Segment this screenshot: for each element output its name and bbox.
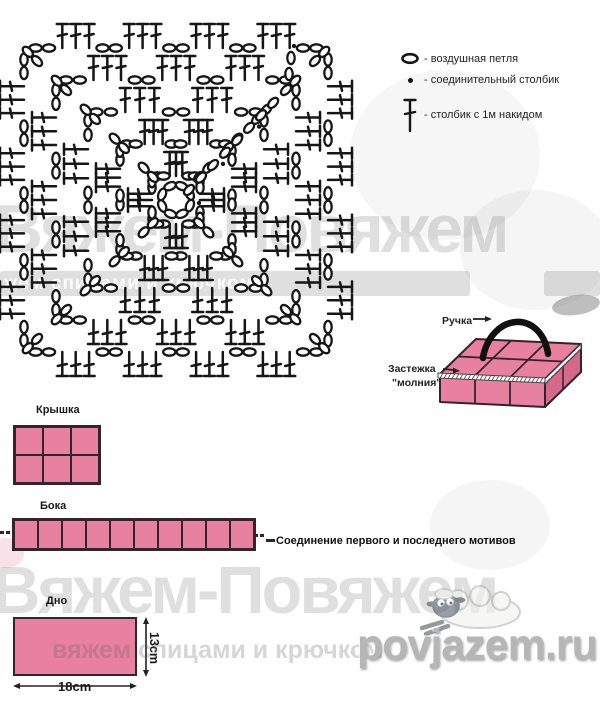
motif-cell <box>43 427 71 455</box>
site-watermark: povjazem.ru <box>357 621 597 670</box>
legend-item-dc: - столбик с 1м накидом <box>396 96 542 134</box>
symbol-legend: - воздушная петля - соединительный столб… <box>396 50 600 145</box>
watermark-tagline-bottom: вяжем спицами и крючком <box>52 636 383 665</box>
motif-cell <box>15 427 43 455</box>
handle-label: Ручка <box>442 315 472 327</box>
join-tick-right-2 <box>260 534 264 537</box>
zipper-label-line1: Застежка <box>388 363 436 375</box>
chain-stitch-icon <box>396 52 424 65</box>
legend-label-slip: - соединительный столбик <box>424 74 559 86</box>
sides-strip <box>12 518 256 551</box>
motif-cell <box>110 520 134 549</box>
double-crochet-icon <box>396 97 424 133</box>
motif-cell <box>43 455 71 483</box>
motif-cell <box>38 520 62 549</box>
granny-square-crochet-chart <box>0 4 356 386</box>
motif-cell <box>206 520 230 549</box>
slip-stitch-icon <box>396 78 424 83</box>
lid-label: Крышка <box>36 404 80 416</box>
motif-cell <box>14 520 38 549</box>
motif-cell <box>86 520 110 549</box>
join-tick-left-2 <box>6 531 10 534</box>
width-dimension-label: 18cm <box>58 679 91 694</box>
legend-label-dc: - столбик с 1м накидом <box>424 109 542 121</box>
motif-cell <box>134 520 158 549</box>
join-note-dash <box>266 539 275 542</box>
legend-item-chain: - воздушная петля <box>396 52 518 65</box>
join-note: Соединение первого и последнего мотивов <box>276 535 516 547</box>
watermark-tagline-band-right <box>544 271 600 296</box>
join-tick-right-1 <box>254 534 258 537</box>
motif-cell <box>71 427 99 455</box>
zipper-label-line2: "молния" <box>392 377 441 389</box>
motif-cell <box>182 520 206 549</box>
join-tick-left-1 <box>0 531 4 534</box>
lid-grid <box>13 425 101 485</box>
sides-label: Бока <box>40 500 66 512</box>
bag-assembly-drawing <box>380 303 598 415</box>
motif-cell <box>62 520 86 549</box>
legend-label-chain: - воздушная петля <box>424 53 518 65</box>
crochet-pattern-page: Вяжем-Повяжем жем спицами и крючком Вяже… <box>0 0 600 701</box>
motif-cell <box>71 455 99 483</box>
motif-cell <box>230 520 254 549</box>
motif-cell <box>158 520 182 549</box>
motif-cell <box>15 455 43 483</box>
legend-item-slip: - соединительный столбик <box>396 74 559 86</box>
